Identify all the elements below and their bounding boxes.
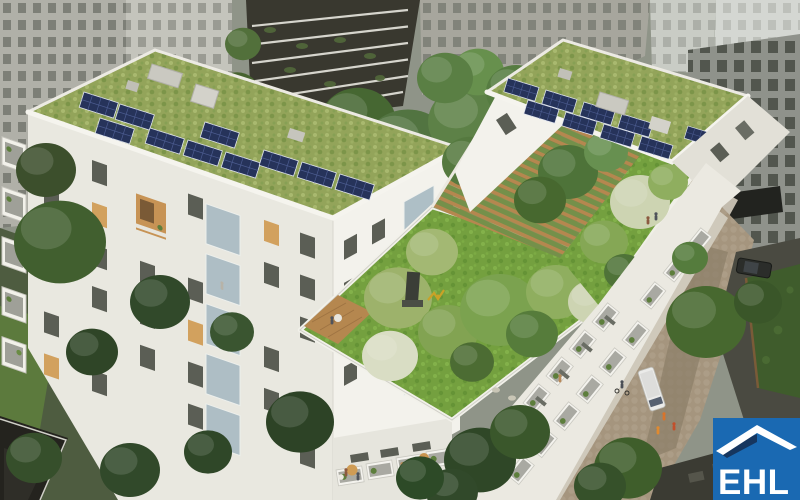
house-roof-icon — [716, 425, 797, 458]
aerial-rendering: EHL — [0, 0, 800, 500]
ehl-logo-text: EHL — [718, 463, 790, 500]
parasol — [347, 465, 358, 476]
ehl-logo: EHL — [713, 418, 800, 500]
